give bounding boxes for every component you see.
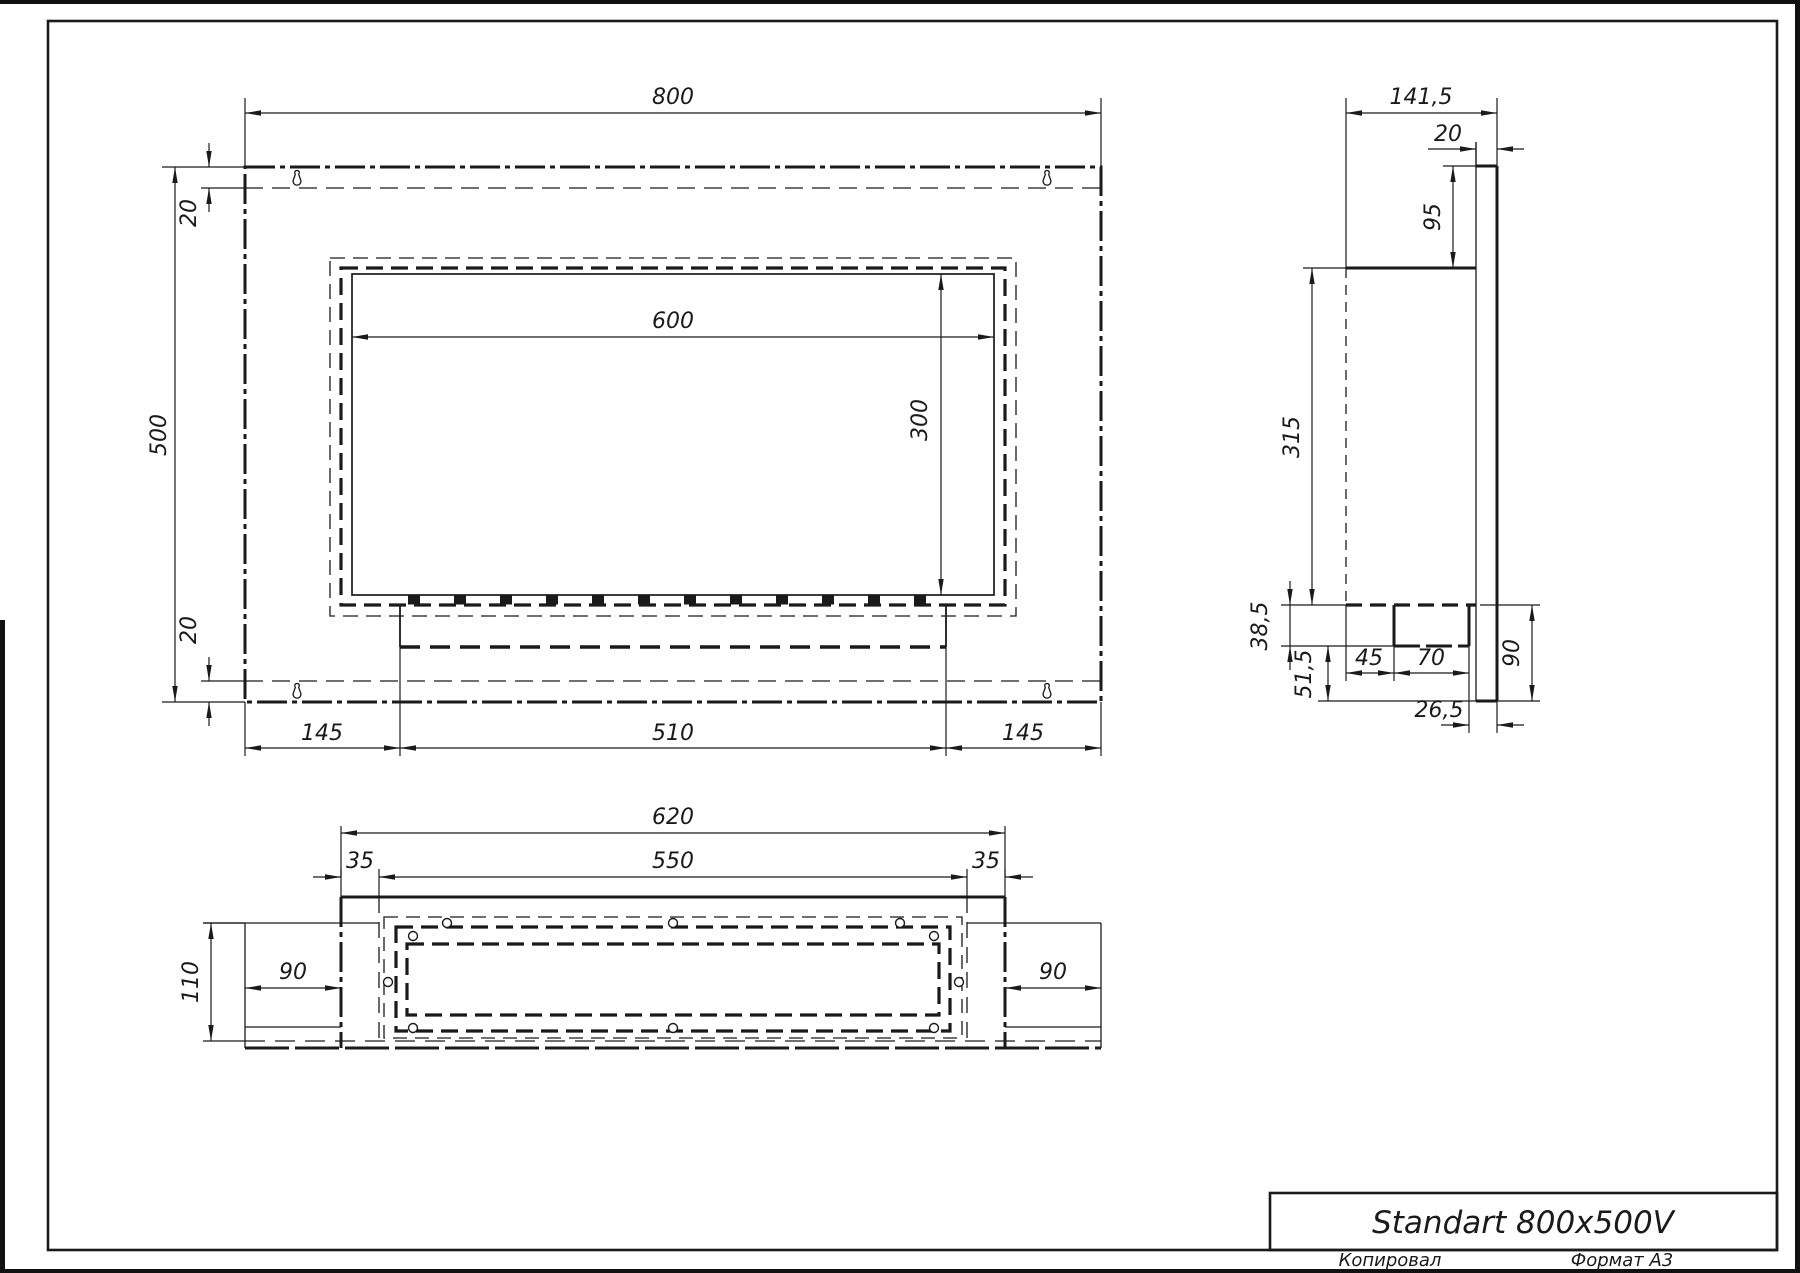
drawing-sheet: 800 500 20 20 600 xyxy=(0,0,1800,1273)
dim-label: 500 xyxy=(147,414,172,456)
dim-side-plate: 20 xyxy=(1428,122,1524,166)
side-view: 141,5 20 95 315 38,5 xyxy=(1248,85,1540,733)
footer-copied-label: Копировал xyxy=(1339,1250,1442,1271)
dim-label: 510 xyxy=(652,721,694,746)
dim-bottom-depth: 110 xyxy=(179,923,245,1041)
dim-label: 550 xyxy=(652,849,694,874)
dim-bottom-wings: 90 90 xyxy=(245,960,1101,988)
keyhole-icon xyxy=(293,684,301,699)
dim-front-opening-height: 300 xyxy=(908,274,941,595)
dim-label: 600 xyxy=(652,309,694,334)
dim-label: 90 xyxy=(1500,639,1525,667)
dim-label: 141,5 xyxy=(1390,85,1453,110)
bottom-burner-inner-hidden xyxy=(407,944,939,1015)
dim-bottom-cavity: 35 550 35 xyxy=(313,849,1033,897)
dim-label: 38,5 xyxy=(1248,602,1273,651)
dim-label: 35 xyxy=(346,849,374,874)
sheet-frame xyxy=(48,21,1777,1250)
dim-label: 70 xyxy=(1417,646,1445,671)
dim-label: 90 xyxy=(279,960,307,985)
dim-front-bottom-margin: 20 xyxy=(177,616,245,726)
bottom-cavity-hidden xyxy=(384,917,962,1038)
keyhole-icon xyxy=(1043,171,1051,186)
dim-label: 45 xyxy=(1355,646,1383,671)
footer-format-label: Формат А3 xyxy=(1571,1250,1674,1271)
dim-label: 145 xyxy=(301,721,343,746)
dim-side-top-offset: 95 xyxy=(1421,166,1476,268)
title-block-title: Standart 800x500V xyxy=(1372,1205,1677,1241)
dim-label: 26,5 xyxy=(1415,698,1464,723)
dim-front-opening-width: 600 xyxy=(352,309,994,337)
dim-label: 20 xyxy=(177,616,202,644)
dim-label: 300 xyxy=(908,399,933,441)
dim-side-plate-drop: 90 xyxy=(1480,605,1540,701)
dim-side-depth: 141,5 xyxy=(1346,85,1497,268)
keyhole-icon xyxy=(1043,684,1051,699)
title-block: Standart 800x500V xyxy=(1270,1193,1777,1250)
dim-label: 51,5 xyxy=(1292,650,1317,699)
dim-label: 20 xyxy=(177,199,202,227)
dim-label: 90 xyxy=(1039,960,1067,985)
drawing-canvas: 800 500 20 20 600 xyxy=(0,0,1800,1273)
front-view: 800 500 20 20 600 xyxy=(147,85,1101,756)
keyhole-icon xyxy=(293,171,301,186)
dim-label: 20 xyxy=(1434,122,1462,147)
dim-label: 145 xyxy=(1002,721,1044,746)
dim-label: 315 xyxy=(1280,416,1305,458)
bottom-view: 620 35 550 35 90 90 110 xyxy=(179,805,1101,1048)
scan-edges xyxy=(0,0,1800,1273)
dim-label: 110 xyxy=(179,961,204,1003)
dim-label: 620 xyxy=(652,805,694,830)
dim-front-width: 800 xyxy=(245,85,1101,167)
front-outer-frame xyxy=(245,167,1101,702)
dim-label: 800 xyxy=(652,85,694,110)
dim-front-top-margin: 20 xyxy=(177,143,245,227)
dim-label: 35 xyxy=(972,849,1000,874)
dim-label: 95 xyxy=(1421,203,1446,231)
footer-labels: Копировал Формат А3 xyxy=(1339,1250,1674,1271)
dim-side-body-height: 315 xyxy=(1280,268,1346,605)
